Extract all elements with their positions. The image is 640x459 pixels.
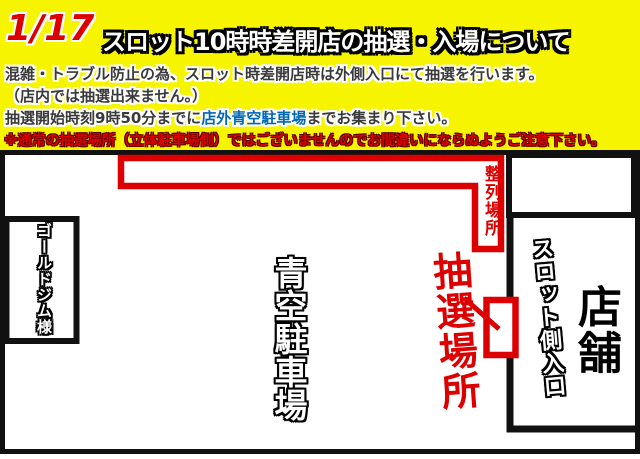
notice-line-3: 抽選開始時刻9時50分までに店外青空駐車場までお集まり下さい。	[5, 107, 456, 128]
lottery-spot-box	[487, 300, 516, 355]
warning-line: ※通常の抽選場所（立体駐車場側）ではございませんのでお間違いにならぬようご注意下…	[4, 130, 605, 150]
store-upper-block	[509, 155, 634, 215]
site-map: 整列場所 抽選場所 青空駐車場 ゴールドジム様 スロット側入口 店舗	[0, 150, 640, 459]
date-label: 1/17	[6, 8, 94, 49]
notice-line-3-post: までお集まり下さい。	[306, 109, 456, 127]
notice-line-3-highlight: 店外青空駐車場	[201, 109, 306, 127]
page-title: スロット10時時差開店の抽選・入場について	[102, 22, 570, 57]
notice-line-3-pre: 抽選開始時刻9時50分までに	[5, 109, 201, 127]
notice-line-1: 混雑・トラブル防止の為、スロット時差開店時は外側入口にて抽選を行います。	[5, 63, 544, 84]
notice-line-2: （店内では抽選出来ません。）	[5, 85, 207, 106]
gold-gym-label: ゴールドジム様	[34, 223, 55, 335]
notice-poster: 1/17 スロット10時時差開店の抽選・入場について 混雑・トラブル防止の為、ス…	[0, 0, 640, 459]
open-air-parking-label: 青空駐車場	[264, 256, 312, 421]
lottery-area-label: 抽選場所	[419, 249, 486, 413]
queue-area-label: 整列場所	[479, 165, 504, 237]
announcement-header: 1/17 スロット10時時差開店の抽選・入場について 混雑・トラブル防止の為、ス…	[0, 0, 640, 150]
store-label: 店舗	[563, 284, 627, 376]
